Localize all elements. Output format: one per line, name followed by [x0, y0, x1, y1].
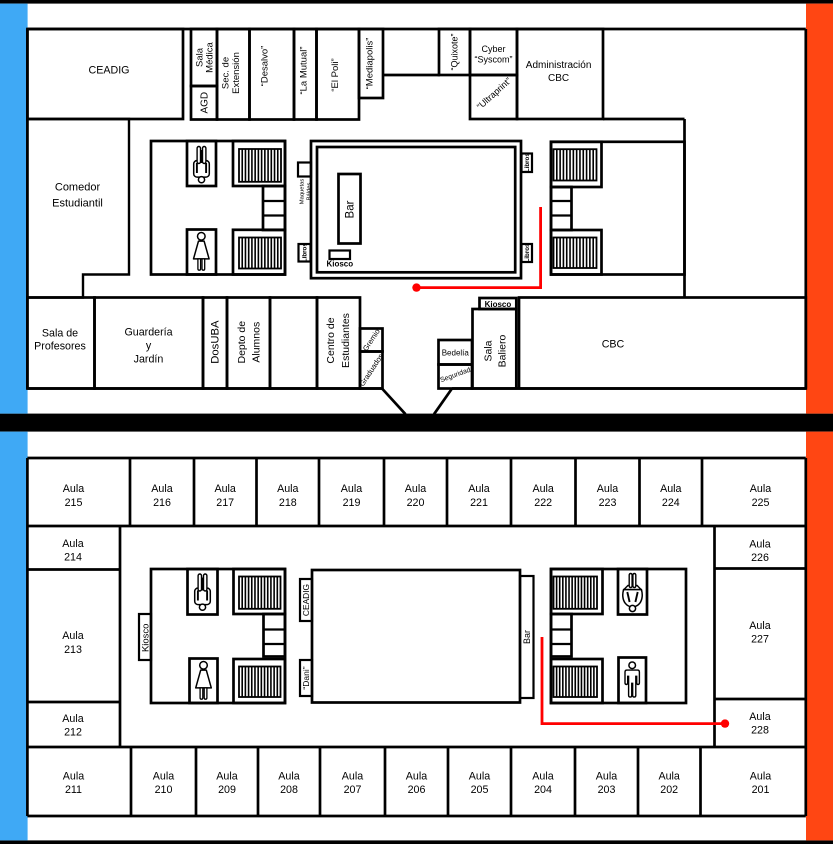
svg-text:Aula: Aula [342, 770, 363, 782]
svg-text:Alumnos: Alumnos [250, 322, 262, 363]
svg-text:Aula: Aula [63, 483, 84, 495]
svg-text:Estudiantes: Estudiantes [340, 313, 352, 368]
svg-text:211: 211 [65, 784, 82, 796]
svg-text:Aula: Aula [277, 483, 298, 495]
svg-text:Aula: Aula [597, 483, 618, 495]
svg-text:207: 207 [344, 784, 362, 796]
svg-text:Aula: Aula [532, 770, 553, 782]
svg-text:Aula: Aula [62, 538, 83, 550]
svg-text:“Desalvo”: “Desalvo” [259, 46, 270, 87]
svg-text:“El Poli”: “El Poli” [330, 58, 341, 91]
svg-text:225: 225 [752, 497, 770, 509]
svg-text:206: 206 [408, 784, 426, 796]
svg-text:Aula: Aula [63, 770, 84, 782]
svg-text:Kiosco: Kiosco [326, 260, 353, 269]
svg-text:Bar: Bar [522, 630, 532, 644]
svg-text:202: 202 [660, 784, 678, 796]
svg-text:“Mediapolis”: “Mediapolis” [364, 38, 375, 90]
svg-text:214: 214 [64, 552, 82, 564]
svg-text:Aula: Aula [62, 713, 83, 725]
svg-text:208: 208 [280, 784, 298, 796]
svg-text:222: 222 [534, 497, 552, 509]
svg-text:Baliero: Baliero [496, 334, 508, 367]
svg-text:Báldes: Báldes [306, 183, 312, 201]
svg-text:209: 209 [218, 784, 236, 796]
svg-text:Aula: Aula [214, 483, 235, 495]
svg-text:Médica: Médica [204, 41, 215, 72]
svg-text:Aula: Aula [278, 770, 299, 782]
svg-text:201: 201 [752, 784, 770, 796]
svg-text:215: 215 [65, 497, 83, 509]
svg-text:Profesores: Profesores [34, 340, 86, 352]
svg-text:213: 213 [64, 644, 82, 656]
svg-text:Extensión: Extensión [231, 52, 242, 94]
svg-text:Libros: Libros [524, 153, 531, 172]
svg-text:216: 216 [153, 497, 171, 509]
svg-text:221: 221 [470, 497, 488, 509]
svg-text:AGD: AGD [200, 92, 211, 114]
svg-text:Depto de: Depto de [236, 321, 248, 364]
svg-text:226: 226 [751, 552, 769, 564]
svg-text:CBC: CBC [602, 339, 625, 351]
svg-text:Aula: Aula [596, 770, 617, 782]
svg-text:CEADIG: CEADIG [301, 584, 311, 616]
svg-text:Kiosco: Kiosco [485, 300, 512, 309]
svg-text:Estudiantil: Estudiantil [52, 198, 103, 210]
svg-text:Sala: Sala [482, 340, 494, 361]
svg-text:Aula: Aula [153, 770, 174, 782]
svg-text:Libros: Libros [302, 243, 309, 262]
svg-text:Aula: Aula [660, 483, 681, 495]
svg-text:Aula: Aula [749, 538, 770, 550]
svg-text:220: 220 [407, 497, 425, 509]
svg-text:205: 205 [471, 784, 489, 796]
svg-text:Aula: Aula [406, 770, 427, 782]
svg-text:Sec. de: Sec. de [220, 57, 231, 89]
svg-text:Aula: Aula [532, 483, 553, 495]
svg-text:Aula: Aula [750, 483, 771, 495]
svg-text:“Quixote”: “Quixote” [450, 33, 460, 70]
svg-text:Libros: Libros [524, 243, 531, 262]
svg-text:212: 212 [64, 727, 82, 739]
svg-text:Centro de: Centro de [325, 317, 337, 363]
svg-text:Aula: Aula [405, 483, 426, 495]
svg-text:Aula: Aula [151, 483, 172, 495]
svg-text:Kiosco: Kiosco [141, 624, 152, 653]
svg-text:Aula: Aula [341, 483, 362, 495]
svg-text:204: 204 [534, 784, 552, 796]
svg-text:Cyber: Cyber [481, 44, 505, 54]
svg-text:Aula: Aula [750, 770, 771, 782]
svg-text:Aula: Aula [749, 620, 770, 632]
svg-text:Aula: Aula [216, 770, 237, 782]
svg-text:203: 203 [598, 784, 616, 796]
svg-text:Sala de: Sala de [42, 327, 78, 339]
svg-text:CEADIG: CEADIG [89, 65, 130, 77]
svg-text:Bedelía: Bedelía [442, 349, 470, 358]
svg-text:223: 223 [599, 497, 617, 509]
svg-text:“Syscom”: “Syscom” [475, 55, 513, 65]
svg-text:Aula: Aula [62, 630, 83, 642]
svg-text:Maquetas: Maquetas [299, 179, 305, 205]
svg-text:210: 210 [155, 784, 173, 796]
svg-text:Aula: Aula [469, 770, 490, 782]
svg-text:Comedor: Comedor [55, 182, 101, 194]
svg-text:228: 228 [751, 725, 769, 737]
svg-text:219: 219 [343, 497, 361, 509]
svg-text:224: 224 [662, 497, 680, 509]
svg-text:y: y [146, 340, 152, 352]
svg-text:Aula: Aula [749, 711, 770, 723]
svg-text:Administración: Administración [526, 60, 592, 71]
svg-text:227: 227 [751, 634, 769, 646]
svg-text:Guardería: Guardería [124, 326, 172, 338]
svg-text:218: 218 [279, 497, 297, 509]
svg-text:217: 217 [216, 497, 234, 509]
svg-text:Bar: Bar [345, 200, 357, 218]
svg-text:Jardín: Jardín [134, 354, 164, 366]
svg-text:“La Mutual”: “La Mutual” [298, 46, 309, 94]
svg-text:Aula: Aula [468, 483, 489, 495]
svg-text:CBC: CBC [548, 73, 569, 84]
svg-text:Aula: Aula [658, 770, 679, 782]
svg-text:“Dani”: “Dani” [301, 666, 311, 689]
svg-text:DosUBA: DosUBA [210, 320, 222, 364]
